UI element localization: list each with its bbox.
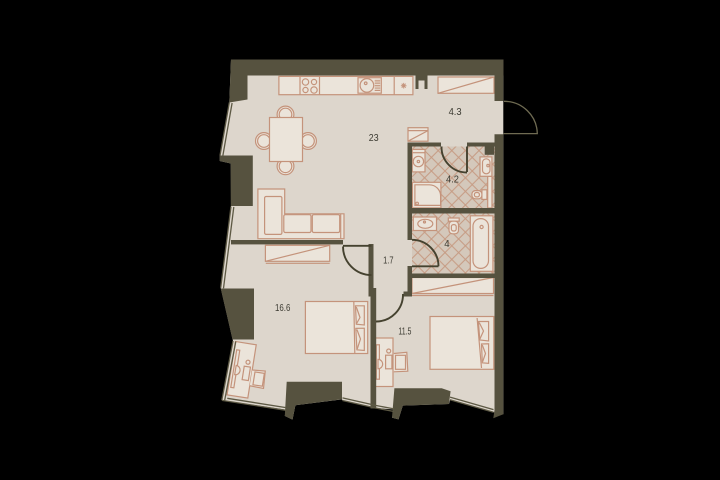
svg-text:11.5: 11.5 xyxy=(398,325,411,337)
svg-text:4.3: 4.3 xyxy=(449,107,462,118)
svg-text:4: 4 xyxy=(444,239,450,250)
svg-text:1.7: 1.7 xyxy=(383,254,393,265)
svg-text:16.6: 16.6 xyxy=(275,302,290,313)
svg-text:23: 23 xyxy=(369,131,379,143)
svg-text:4.2: 4.2 xyxy=(446,174,459,185)
